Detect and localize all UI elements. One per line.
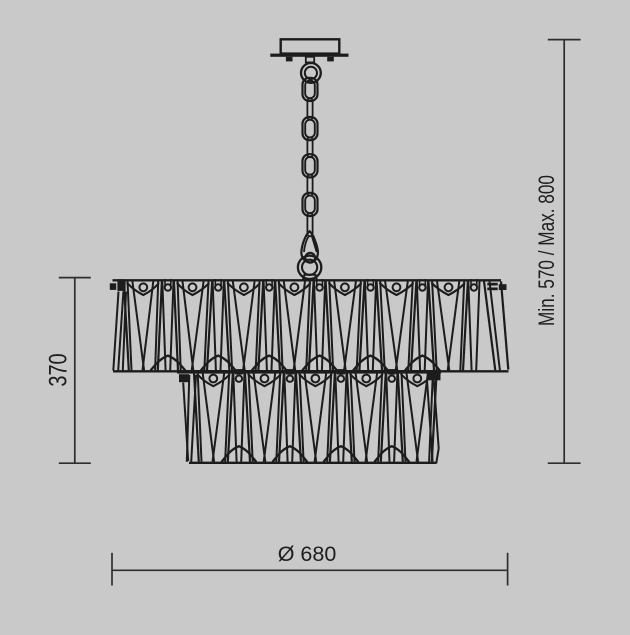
svg-text:370: 370 [44,353,72,386]
svg-text:Min. 570 / Max. 800: Min. 570 / Max. 800 [535,175,560,326]
svg-text:Ø 680: Ø 680 [278,542,337,566]
